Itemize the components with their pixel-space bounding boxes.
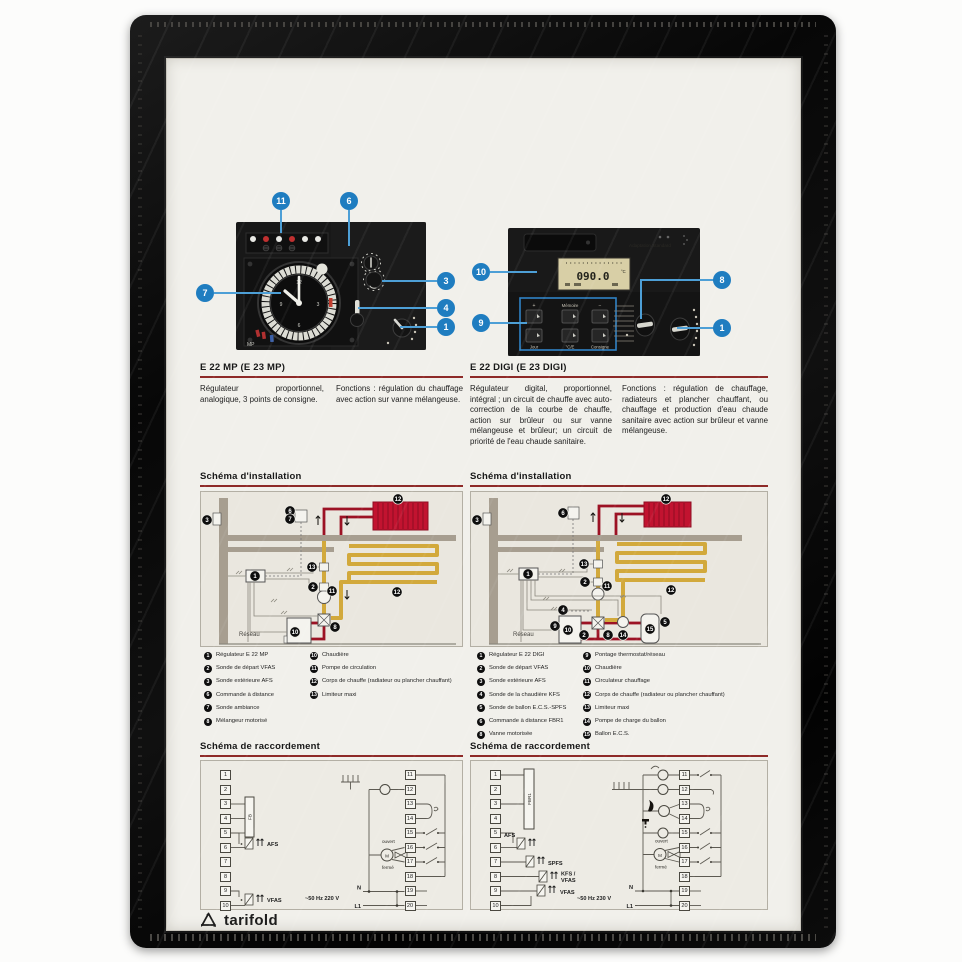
legend-number: 12 [583,691,591,699]
svg-text:13: 13 [581,562,588,568]
legend-label: Mélangeur motorisé [216,716,267,724]
limiter-sensor [320,563,329,571]
callout-line [640,279,714,281]
legend-number: 1 [204,652,212,660]
callout-line [214,292,281,294]
legend-item: 2Sonde de départ VFAS [204,663,275,676]
terminal-6: 6 [220,843,231,853]
svg-text:9: 9 [280,302,283,308]
legend-number: 6 [477,718,485,726]
legend-label: Chaudière [322,650,349,658]
floor-heating-coil [598,541,705,620]
product-photo-e22digi: Adaptation Standard 090.0 °C + M [508,228,700,356]
legend-number: 15 [583,731,591,739]
terminal-5: 5 [220,828,231,838]
callout-6: 6 [340,192,358,210]
svg-text:15: 15 [647,627,654,633]
callout-line [400,326,437,328]
section-installation-right: Schéma d'installation [470,471,571,482]
legend-item: 9Pontage thermostat/réseau [583,650,725,663]
keypad-label-minus: − [599,303,602,309]
svg-text:SPFS: SPFS [548,861,563,867]
terminal-5: 5 [490,828,501,838]
burner-symbol [659,806,670,817]
reseau-label: Réseau [239,632,260,638]
section-raccordement-left: Schéma de raccordement [200,741,320,752]
terminal-9: 9 [490,886,501,896]
legend-label: Sonde de ballon E.C.S.-SPFS [489,703,566,711]
section-rule [470,485,768,487]
legend-item: 6Commande à distance FBR1 [477,716,566,729]
callout-3: 3 [437,272,455,290]
svg-text:VFAS: VFAS [561,878,576,884]
wiring-diagram-e22mp: FB AFS VFAS [200,760,463,910]
knob-consigne [366,272,382,288]
radiator [373,502,428,530]
legend-label: Corps de chauffe (radiateur ou plancher … [322,676,452,684]
callout-line [280,210,282,233]
room-station [295,510,307,522]
terminal-4: 4 [220,814,231,824]
terminal-18: 18 [679,872,690,882]
legend-left-col1: 1Régulateur E 22 MP2Sonde de départ VFAS… [204,650,275,729]
svg-text:3: 3 [317,302,320,308]
pump-symbol [658,770,668,780]
title-rule-left [200,376,463,378]
recycle-icon [200,912,217,929]
ceiling [228,535,456,541]
outdoor-sensor [483,513,491,525]
wiring-diagram-e22digi: FBR1 AFS SPFS [470,760,768,910]
afs-sensor: AFS [241,838,279,849]
svg-text:12: 12 [394,590,401,596]
legend-number: 2 [477,665,485,673]
installation-diagram-e22digi: Réseau 36113211121249102814155 [470,491,768,647]
floor-heating-coil [324,541,437,618]
phase-label: L1 [354,904,361,909]
supply-label: ~50 Hz 230 V [577,896,611,902]
lcd-value: 090.0 [576,270,609,283]
callout-7: 7 [196,284,214,302]
section-rule [470,755,768,757]
legend-label: Commande à distance [216,690,274,698]
title-rule-right [470,376,768,378]
legend-item: 12Corps de chauffe (radiateur ou planche… [583,690,725,703]
legend-item: 11Circulateur chauffage [583,676,725,689]
legend-item: 14Pompe de charge du ballon [583,716,725,729]
callout-line [490,271,537,273]
svg-text:AFS: AFS [267,842,278,848]
flame-icon [648,800,654,812]
radiator [644,502,691,527]
ceiling [498,535,742,541]
neutral-label: N [357,886,361,892]
svg-text:KFS /: KFS / [561,872,576,878]
terminal-9: 9 [220,886,231,896]
callout-line [358,307,437,309]
circulation-pump [592,588,604,600]
legend-number: 9 [583,652,591,660]
legend-item: 13Limiteur maxi [583,703,725,716]
callout-11: 11 [272,192,290,210]
neutral-label: N [629,885,633,891]
legend-right-col1: 1Régulateur E 22 DIGI2Sonde de départ VF… [477,650,566,742]
legend-number: 11 [583,678,591,686]
terminal-15: 15 [405,828,416,838]
legend-label: Sonde ambiance [216,703,260,711]
terminal-8: 8 [490,872,501,882]
functions-right: Fonctions : régulation de chauffage, rad… [622,384,768,437]
terminal-16: 16 [679,843,690,853]
remote-control [568,507,579,519]
terminal-13: 13 [405,799,416,809]
pump-symbol [658,828,668,838]
legend-label: Régulateur E 22 DIGI [489,650,544,658]
description-right: Régulateur digital, proportionnel, intég… [470,384,612,448]
legend-label: Limiteur maxi [322,690,356,698]
legend-number: 8 [477,731,485,739]
legend-label: Sonde de départ VFAS [489,663,548,671]
legend-number: 2 [204,665,212,673]
callout-10: 10 [472,263,490,281]
callout-line [640,279,642,319]
legend-label: Vanne motorisée [489,729,532,737]
pump-symbol [658,785,668,795]
legend-number: 13 [583,704,591,712]
svg-text:10: 10 [565,628,572,634]
legend-number: 8 [204,718,212,726]
terminal-12: 12 [679,785,690,795]
legend-number: 10 [583,665,591,673]
svg-text:12: 12 [663,497,670,503]
stitching-left [138,35,142,928]
vfas-sensor: VFAS [537,885,575,896]
top-slot [524,234,596,251]
svg-text:12: 12 [668,588,675,594]
terminal-8: 8 [220,872,231,882]
legend-number: 10 [310,652,318,660]
legend-label: Commande à distance FBR1 [489,716,563,724]
terminal-14: 14 [679,814,690,824]
legend-label: Corps de chauffe (radiateur ou plancher … [595,690,725,698]
supply-label: ~50 Hz 220 V [305,896,339,902]
svg-text:6: 6 [298,323,301,329]
legend-item: 2Sonde de départ VFAS [477,663,566,676]
terminal-1: 1 [490,770,501,780]
terminal-19: 19 [679,886,690,896]
terminal-18: 18 [405,872,416,882]
stitching-right [824,35,828,928]
legend-number: 6 [204,691,212,699]
terminal-2: 2 [490,785,501,795]
callout-1: 1 [713,319,731,337]
legend-item: 1Régulateur E 22 MP [204,650,275,663]
fbr1-label: FBR1 [527,793,532,805]
legend-left-col2: 10Chaudière11Pompe de circulation12Corps… [310,650,452,703]
svg-text:M: M [385,853,389,858]
legend-number: 1 [477,652,485,660]
terminal-12: 12 [405,785,416,795]
legend-label: Sonde extérieure AFS [216,676,273,684]
terminal-15: 15 [679,828,690,838]
legend-item: 5Sonde de ballon E.C.S.-SPFS [477,703,566,716]
terminal-13: 13 [679,799,690,809]
legend-item: 13Limiteur maxi [310,690,452,703]
callout-1: 1 [437,318,455,336]
terminal-11: 11 [679,770,690,780]
legend-item: 12Corps de chauffe (radiateur ou planche… [310,676,452,689]
svg-text:VFAS: VFAS [267,898,282,904]
svg-text:VFAS: VFAS [560,890,575,896]
callout-8: 8 [713,271,731,289]
tarifold-display-pocket: 12 3 6 9 MP [130,15,836,948]
keypad-label-memoire: Mémoire [562,303,579,308]
motor-valve-symbol: M ouvert fermé [654,839,680,870]
stitching-top [150,22,816,27]
legend-item: 1Régulateur E 22 DIGI [477,650,566,663]
terminal-10: 10 [220,901,231,911]
terminal-19: 19 [405,886,416,896]
legend-label: Limiteur maxi [595,703,629,711]
legend-number: 12 [310,678,318,686]
afs-sensor: AFS [504,833,536,849]
terminal-16: 16 [405,843,416,853]
page-content: 12 3 6 9 MP [166,58,801,931]
panel-mark: MP [247,342,255,348]
svg-text:AFS: AFS [504,833,515,839]
callout-line [348,210,350,246]
svg-text:12: 12 [395,497,402,503]
timer-clock-dial: 12 3 6 9 [244,258,358,346]
keypad-label-consigne: Consigne [591,345,610,350]
legend-label: Pompe de circulation [322,663,376,671]
legend-label: Circulateur chauffage [595,676,650,684]
legend-label: Pontage thermostat/réseau [595,650,665,658]
adaptation-label: Adaptation Standard [629,243,671,248]
legend-label: Chaudière [595,663,622,671]
legend-item: 10Chaudière [583,663,725,676]
callout-9: 9 [472,314,490,332]
terminal-6: 6 [490,843,501,853]
brand-name: tarifold [224,912,278,929]
legend-item: 7Sonde ambiance [204,703,275,716]
callout-line [382,280,437,282]
section-rule [200,755,463,757]
legend-number: 3 [204,678,212,686]
legend-label: Sonde de départ VFAS [216,663,275,671]
legend-item: 3Sonde extérieure AFS [204,676,275,689]
outdoor-sensor [213,513,221,525]
legend-label: Ballon E.C.S. [595,729,629,737]
lcd-unit: °C [621,269,626,274]
legend-number: 14 [583,718,591,726]
section-installation-left: Schéma d'installation [200,471,301,482]
legend-number: 4 [477,691,485,699]
terminal-7: 7 [490,857,501,867]
terminal-1: 1 [220,770,231,780]
svg-text:10: 10 [292,630,299,636]
functions-left: Fonctions : régulation du chauffage avec… [336,384,463,405]
svg-text:11: 11 [604,584,611,590]
svg-text:11: 11 [329,589,336,595]
legend-item: 15Ballon E.C.S. [583,729,725,742]
product-photo-e22mp: 12 3 6 9 MP [236,222,426,350]
legend-right-col2: 9Pontage thermostat/réseau10Chaudière11C… [583,650,725,742]
callout-4: 4 [437,299,455,317]
datasheet-page: 12 3 6 9 MP [166,58,801,931]
legend-item: 4Sonde de la chaudière KFS [477,690,566,703]
legend-label: Sonde extérieure AFS [489,676,546,684]
installation-diagram-e22mp: Réseau 3671132111212108 [200,491,463,647]
terminal-20: 20 [405,901,416,911]
legend-number: 11 [310,665,318,673]
legend-item: 10Chaudière [310,650,452,663]
keypad-label-plus: + [533,303,536,309]
terminal-14: 14 [405,814,416,824]
ferme-label: fermé [382,865,394,870]
callout-line [490,322,527,324]
legend-item: 3Sonde extérieure AFS [477,676,566,689]
section-rule [200,485,463,487]
legend-item: 6Commande à distance [204,690,275,703]
reseau-label: Réseau [513,632,534,638]
ouvert-label: ouvert [655,839,668,844]
red-rider [329,298,333,307]
tarifold-logo: tarifold [200,912,278,929]
terminal-11: 11 [405,770,416,780]
terminal-7: 7 [220,857,231,867]
indicator-strip [246,233,328,253]
vfas-sensor: VFAS [241,894,282,905]
callout-line [677,327,714,329]
svg-text:M: M [658,853,662,858]
product-title-left: E 22 MP (E 23 MP) [200,362,285,373]
phase-label: L1 [626,904,633,909]
legend-number: 5 [477,704,485,712]
terminal-2: 2 [220,785,231,795]
legend-number: 3 [477,678,485,686]
legend-number: 7 [204,704,212,712]
charge-pump [618,617,629,628]
svg-text:13: 13 [309,565,316,571]
terminal-3: 3 [220,799,231,809]
product-title-right: E 22 DIGI (E 23 DIGI) [470,362,567,373]
legend-item: 8Mélangeur motorisé [204,716,275,729]
description-left: Régulateur proportionnel, analogique, 3 … [200,384,324,405]
ferme-label: fermé [655,865,667,870]
legend-item: 11Pompe de circulation [310,663,452,676]
legend-label: Sonde de la chaudière KFS [489,690,560,698]
pump-symbol [380,785,390,795]
svg-text:14: 14 [620,633,627,639]
keypad-label-mode: °C/E [566,345,575,350]
terminal-3: 3 [490,799,501,809]
terminal-20: 20 [679,901,690,911]
terminal-10: 10 [490,901,501,911]
lcd-display: 090.0 °C [558,258,630,290]
keypad-label-jour: Jour [530,345,539,350]
ouvert-label: ouvert [382,839,395,844]
spfs-sensor: SPFS [526,856,563,867]
terminal-17: 17 [679,857,690,867]
legend-label: Régulateur E 22 MP [216,650,268,658]
legend-label: Pompe de charge du ballon [595,716,666,724]
photo-stage: 12 3 6 9 MP [0,0,962,962]
terminal-4: 4 [490,814,501,824]
section-raccordement-right: Schéma de raccordement [470,741,590,752]
stitching-bottom [150,934,816,941]
kfs-vfas-sensor: KFS / VFAS [539,871,576,884]
motor-valve-symbol: M ouvert fermé [381,839,407,870]
fb-label: FB [248,814,253,820]
legend-number: 13 [310,691,318,699]
terminal-17: 17 [405,857,416,867]
